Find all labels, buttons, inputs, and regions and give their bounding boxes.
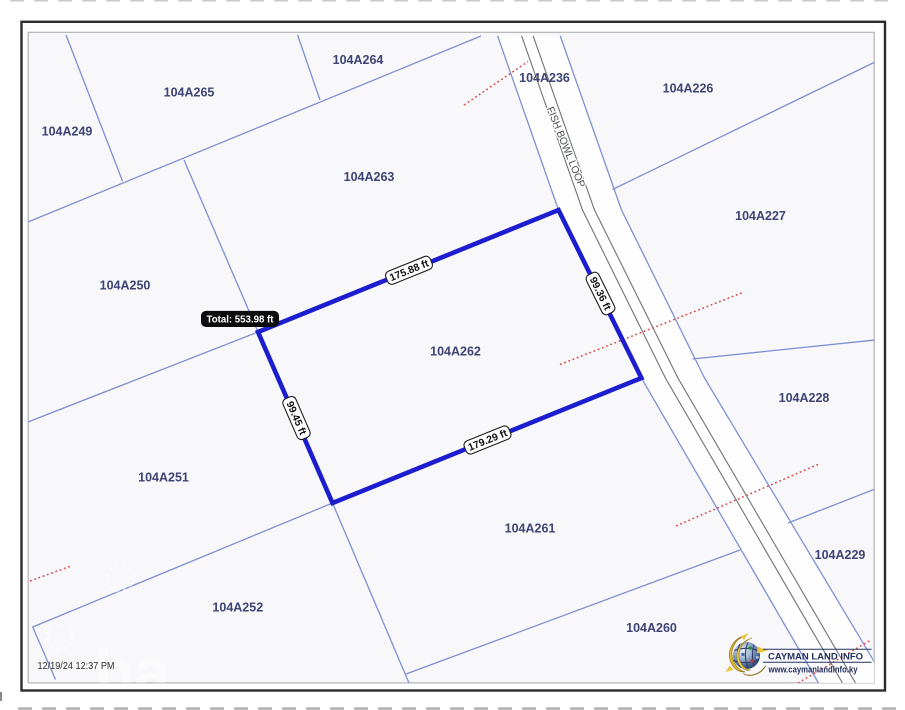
svg-text:104A263: 104A263: [344, 170, 395, 184]
svg-text:104A249: 104A249: [42, 125, 93, 139]
svg-text:104A250: 104A250: [100, 279, 151, 293]
svg-text:104A261: 104A261: [505, 522, 556, 536]
svg-text:Total: 553.98 ft: Total: 553.98 ft: [207, 314, 275, 325]
svg-text:CAYMAN LAND INFO: CAYMAN LAND INFO: [768, 651, 863, 661]
svg-text:12/19/24 12:37 PM: 12/19/24 12:37 PM: [38, 660, 115, 672]
svg-text:104A226: 104A226: [663, 82, 714, 96]
svg-text:104A227: 104A227: [735, 209, 786, 223]
svg-text:104A229: 104A229: [815, 548, 866, 562]
svg-text:104A252: 104A252: [212, 601, 263, 615]
svg-text:104A251: 104A251: [138, 471, 189, 485]
svg-text:104A264: 104A264: [333, 53, 384, 67]
svg-text:ba: ba: [95, 636, 170, 708]
svg-text:104A228: 104A228: [779, 391, 830, 405]
svg-text:104A236: 104A236: [519, 71, 570, 85]
svg-text:104A262: 104A262: [430, 345, 481, 359]
svg-text:www.caymanlandinfo.ky: www.caymanlandinfo.ky: [768, 665, 858, 676]
svg-text:104A260: 104A260: [626, 621, 677, 635]
svg-text:104A265: 104A265: [164, 86, 215, 100]
